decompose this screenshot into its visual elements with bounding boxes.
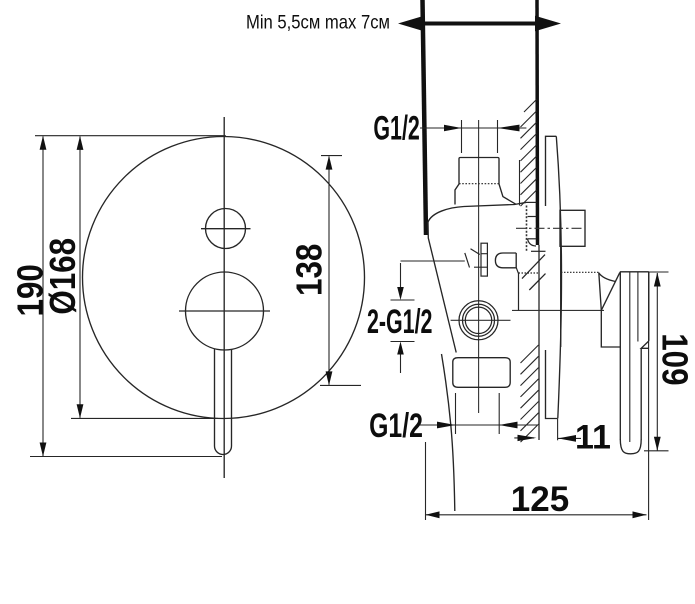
svg-text:Min 5,5см max 7см: Min 5,5см max 7см: [246, 12, 390, 34]
svg-text:Ø168: Ø168: [43, 238, 84, 315]
svg-text:138: 138: [289, 244, 330, 296]
svg-text:109: 109: [654, 333, 695, 385]
svg-text:2-G1/2: 2-G1/2: [367, 303, 432, 341]
svg-text:11: 11: [575, 419, 611, 457]
svg-text:G1/2: G1/2: [373, 109, 419, 147]
svg-text:G1/2: G1/2: [369, 408, 423, 446]
svg-text:125: 125: [511, 480, 569, 519]
